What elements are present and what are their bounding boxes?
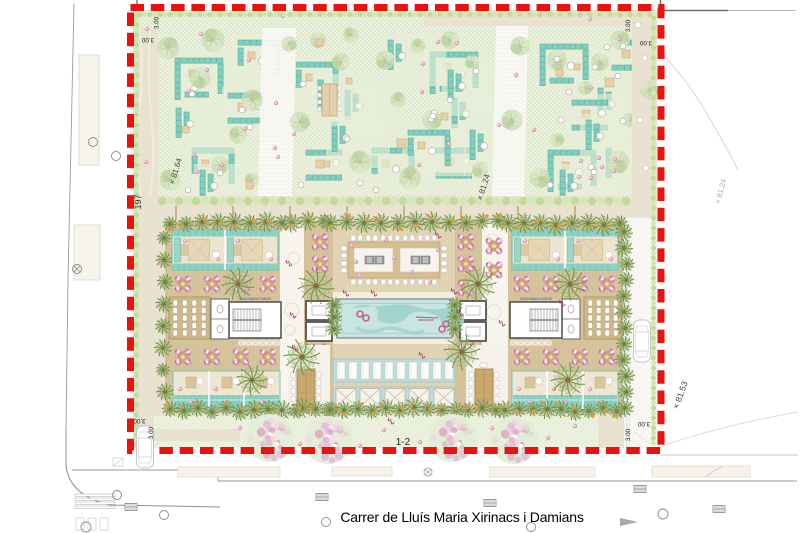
- svg-text:3.00: 3.00: [148, 426, 155, 439]
- svg-text:3.00: 3.00: [639, 39, 652, 46]
- svg-text:SNACKBAR/LOUNGE: SNACKBAR/LOUNGE: [520, 297, 552, 301]
- svg-text:Carrer de Lluís Maria Xirinacs: Carrer de Lluís Maria Xirinacs i Damians: [340, 509, 584, 525]
- svg-text:3.00: 3.00: [141, 36, 154, 43]
- svg-text:197: 197: [133, 194, 143, 209]
- svg-text:SNACKBAR/LOUNGE: SNACKBAR/LOUNGE: [239, 297, 271, 301]
- svg-text:3.00: 3.00: [154, 16, 161, 29]
- svg-text:3.00: 3.00: [625, 428, 632, 441]
- svg-text:3.00: 3.00: [133, 417, 146, 424]
- svg-text:3.00: 3.00: [625, 19, 632, 32]
- svg-text:1-2: 1-2: [396, 437, 411, 448]
- svg-text:3.00: 3.00: [637, 420, 650, 427]
